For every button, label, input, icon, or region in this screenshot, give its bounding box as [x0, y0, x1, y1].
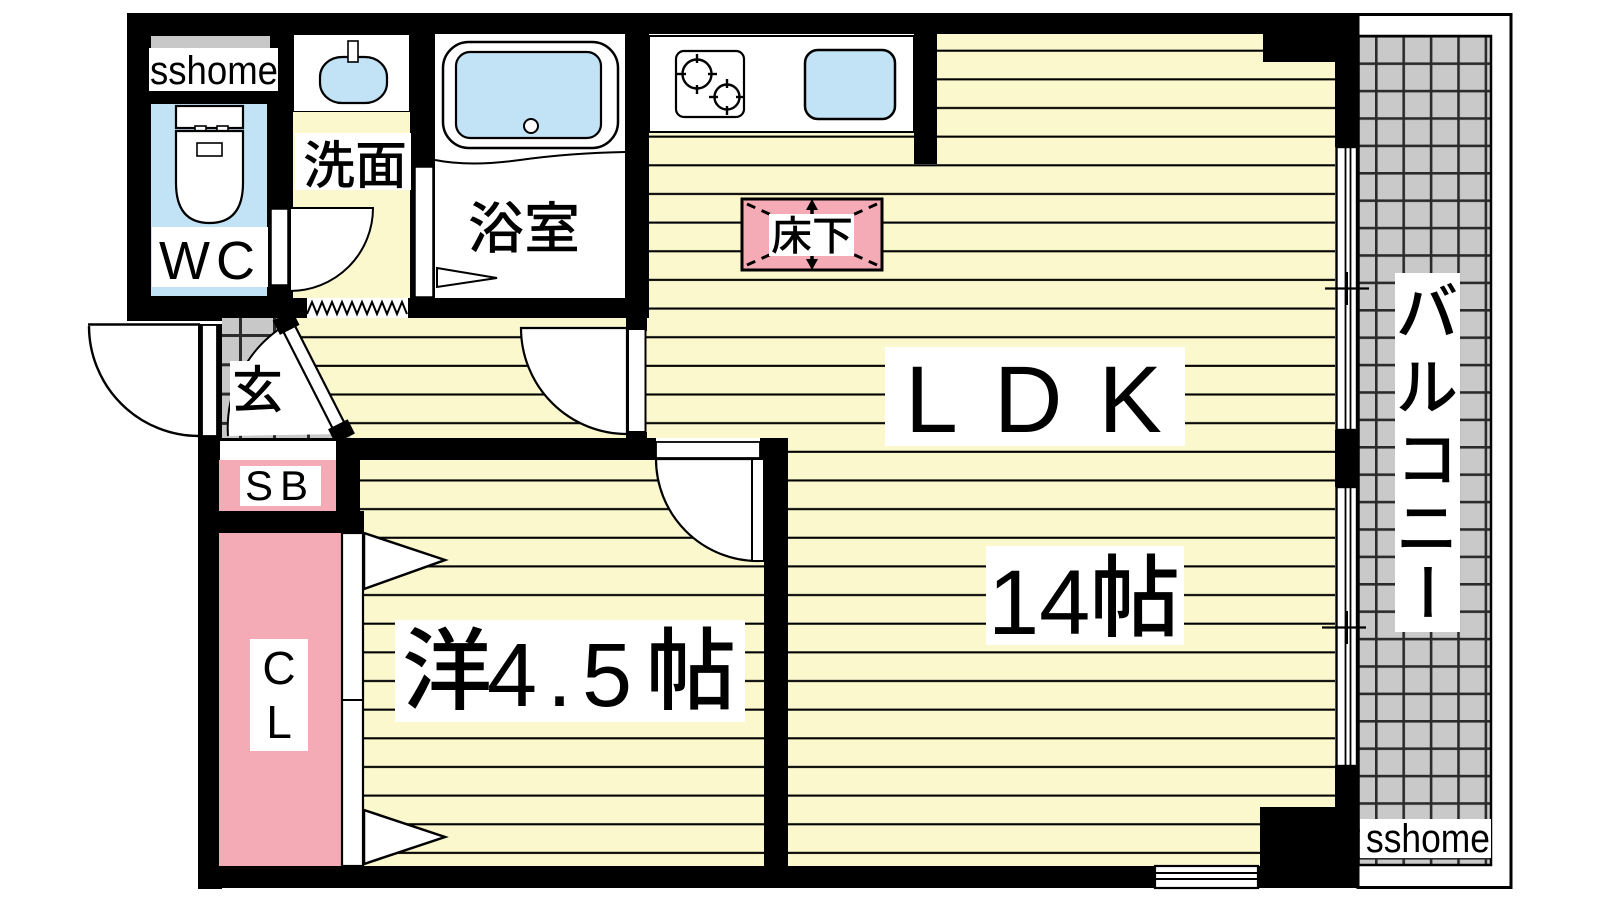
- svg-text:sshome: sshome: [150, 49, 278, 93]
- svg-text:SB: SB: [245, 462, 315, 509]
- svg-text:4.5: 4.5: [487, 626, 642, 726]
- svg-text:C: C: [262, 642, 295, 694]
- svg-text:LDK: LDK: [905, 347, 1198, 453]
- svg-text:L: L: [266, 696, 292, 748]
- svg-text:sshome: sshome: [1366, 817, 1490, 861]
- svg-text:WC: WC: [159, 231, 261, 291]
- svg-text:14: 14: [988, 552, 1090, 654]
